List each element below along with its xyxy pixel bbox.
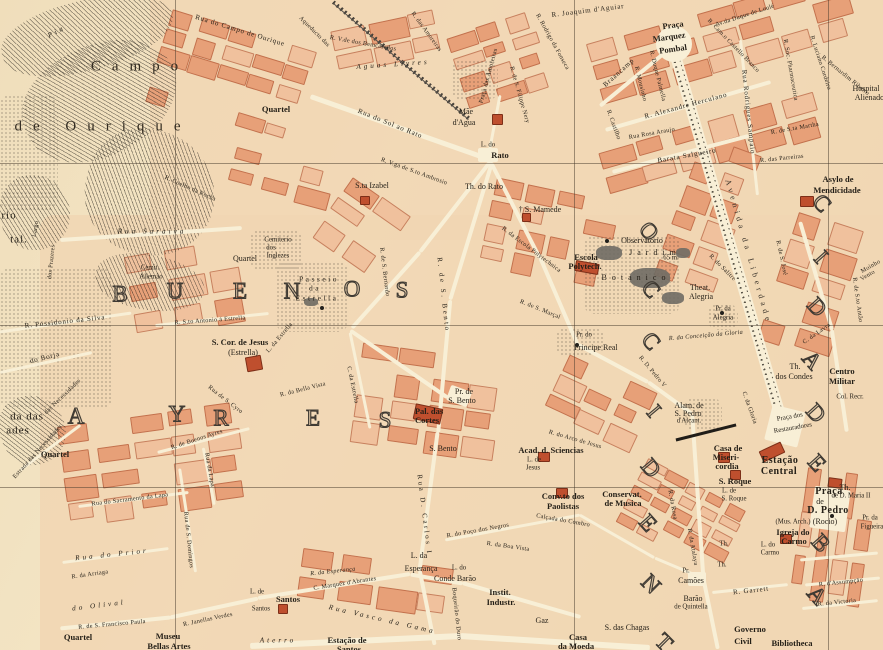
place-label: rio	[1, 211, 16, 222]
place-label: Quartel	[41, 450, 69, 459]
place-label: Alegria	[689, 293, 713, 301]
place-label: Camões	[678, 577, 704, 585]
place-label: Pr. do	[576, 333, 592, 340]
place-label: Praça	[815, 487, 843, 497]
place-label: S. Cor. de Jesus	[212, 338, 269, 347]
place-label: Carmo	[761, 551, 780, 558]
park-stipple	[0, 268, 112, 408]
place-label: Esperança	[405, 565, 438, 573]
place-label: Conde Barão	[434, 575, 476, 583]
place-label: Bellas Artes	[147, 642, 190, 650]
place-label: Quartel	[64, 633, 92, 642]
place-label: S. das Chagas	[605, 624, 650, 632]
city-block	[510, 252, 534, 277]
poi-dot	[320, 306, 324, 310]
district-letter: U	[167, 280, 184, 303]
place-label: S. Bento	[448, 397, 476, 405]
graticule-line	[0, 163, 883, 164]
place-label: L. de	[527, 458, 541, 465]
place-label: Centro	[829, 367, 854, 376]
place-label: Estação	[762, 456, 799, 466]
place-label: Polytech.	[568, 262, 601, 271]
place-label: S. Roque	[722, 497, 747, 504]
graticule-line	[0, 487, 883, 488]
place-label: D. Pedro	[807, 506, 849, 516]
place-label: Quartel	[233, 255, 257, 263]
place-label: Pr. de	[455, 388, 473, 396]
place-label: de Ourique	[14, 120, 191, 135]
place-label: Th. do Rato	[465, 183, 503, 191]
place-label: d'Agua	[453, 119, 476, 127]
place-label: Theat.	[690, 284, 710, 292]
place-label: de Quintella	[674, 605, 707, 612]
place-label: Allemão	[139, 275, 162, 282]
place-label: S. Roque	[719, 477, 752, 486]
place-label: Th.	[719, 542, 728, 549]
place-label: Instit.	[489, 588, 511, 597]
place-label: Campo	[91, 60, 189, 75]
place-label: Santos	[276, 595, 300, 604]
place-label: da das	[10, 412, 44, 423]
place-label: Industr.	[487, 598, 516, 607]
place-label: Civil	[734, 637, 751, 646]
district-letter: S	[379, 409, 392, 432]
place-label: Paolistas	[547, 502, 579, 511]
place-label: Acad. d. Sciencias	[518, 446, 583, 455]
monument-building	[278, 604, 288, 614]
place-label: Cemiterio	[264, 238, 291, 245]
street-label: Rua Saraiva	[118, 228, 187, 235]
garden-trees	[662, 292, 684, 304]
place-label: Alienados	[855, 94, 883, 102]
place-label: Pr. da	[862, 516, 877, 523]
place-label: cordia	[715, 462, 738, 471]
place-label: Santos	[337, 645, 361, 650]
place-label: Central	[761, 467, 797, 477]
place-label: L. de	[250, 590, 264, 597]
monument-building	[245, 355, 263, 373]
place-label: Museu	[156, 632, 181, 641]
poi-dot	[605, 239, 609, 243]
place-label: Quartel	[262, 105, 290, 114]
place-label: Rato	[491, 151, 508, 160]
place-label: † S. Mamede	[519, 206, 561, 214]
city-block	[460, 435, 496, 460]
place-label: Pr. da	[715, 307, 730, 314]
place-label: dos Condes	[775, 373, 812, 381]
place-label: Gaz	[536, 617, 549, 625]
place-label: L. do	[452, 566, 466, 573]
place-label: 65 m.	[663, 256, 678, 263]
monument-building	[360, 196, 370, 205]
place-label: (Rocio)	[813, 518, 837, 526]
place-label: Governo	[734, 625, 766, 634]
place-label: Barão	[683, 595, 702, 603]
park-stipple	[0, 95, 58, 210]
place-label: Bibliotheca	[771, 639, 812, 648]
place-label: da	[309, 284, 321, 292]
place-label: Passeio	[299, 275, 339, 283]
place-label: (Estrella)	[228, 349, 258, 357]
place-label: L. do	[481, 143, 495, 150]
place-label: S.ta Izabel	[355, 182, 389, 190]
district-letter: S	[396, 279, 409, 302]
place-label: Jesus	[526, 466, 540, 473]
place-label: tal.	[10, 235, 28, 246]
place-label: Estrella	[296, 294, 339, 302]
place-label: Pr.	[682, 569, 689, 576]
district-letter: A	[68, 405, 85, 428]
district-letter: R	[213, 407, 228, 430]
district-letter: O	[344, 278, 361, 301]
monument-building	[492, 114, 503, 125]
place-label: Col. Recr.	[836, 395, 863, 402]
graticule-line	[0, 325, 883, 326]
place-label: Principe Real	[574, 344, 617, 352]
city-block	[214, 480, 244, 501]
place-label: Cemit.	[141, 266, 159, 273]
place-label: d'Alcant.	[677, 419, 701, 426]
place-label: Mãe	[459, 108, 473, 116]
place-label: Militar	[829, 377, 855, 386]
city-block	[350, 420, 381, 446]
place-label: de Musica	[604, 499, 641, 508]
place-label: Carmo	[781, 537, 807, 546]
place-label: Th.	[790, 363, 801, 371]
place-label: Asylo de	[823, 175, 854, 184]
place-label: Cortes	[415, 416, 439, 425]
street-label: Botanico	[602, 274, 671, 282]
place-label: Conv.to dos	[542, 492, 585, 501]
garden-trees	[596, 246, 622, 260]
district-letter: E	[233, 280, 247, 303]
place-label: da Moeda	[558, 642, 594, 650]
place-label: Hospital	[852, 85, 879, 93]
place-label: S. Bento	[429, 445, 457, 453]
place-label: (Mus. Arch.)	[776, 520, 811, 527]
place-label: Santos	[252, 607, 270, 614]
place-label: dos	[266, 246, 275, 253]
place-label: Alegria	[713, 316, 733, 323]
district-letter: Y	[169, 403, 186, 426]
district-letter: B	[112, 283, 127, 306]
place-label: Th.	[717, 563, 726, 570]
place-label: ades	[6, 426, 30, 437]
city-map: PiaCampode OuriqueRua do Campo de Ouriqu…	[0, 0, 883, 650]
place-label: Observatorio	[621, 237, 663, 245]
place-label: L. do	[761, 543, 775, 550]
district-letter: E	[306, 407, 320, 430]
monument-building	[522, 213, 531, 222]
street-label: Aterro	[260, 637, 297, 644]
city-block	[211, 454, 237, 473]
place-label: Inglezes	[267, 254, 290, 261]
place-label: L. de	[722, 489, 736, 496]
place-label: L. da	[411, 552, 427, 560]
place-label: Figueira	[861, 525, 883, 532]
